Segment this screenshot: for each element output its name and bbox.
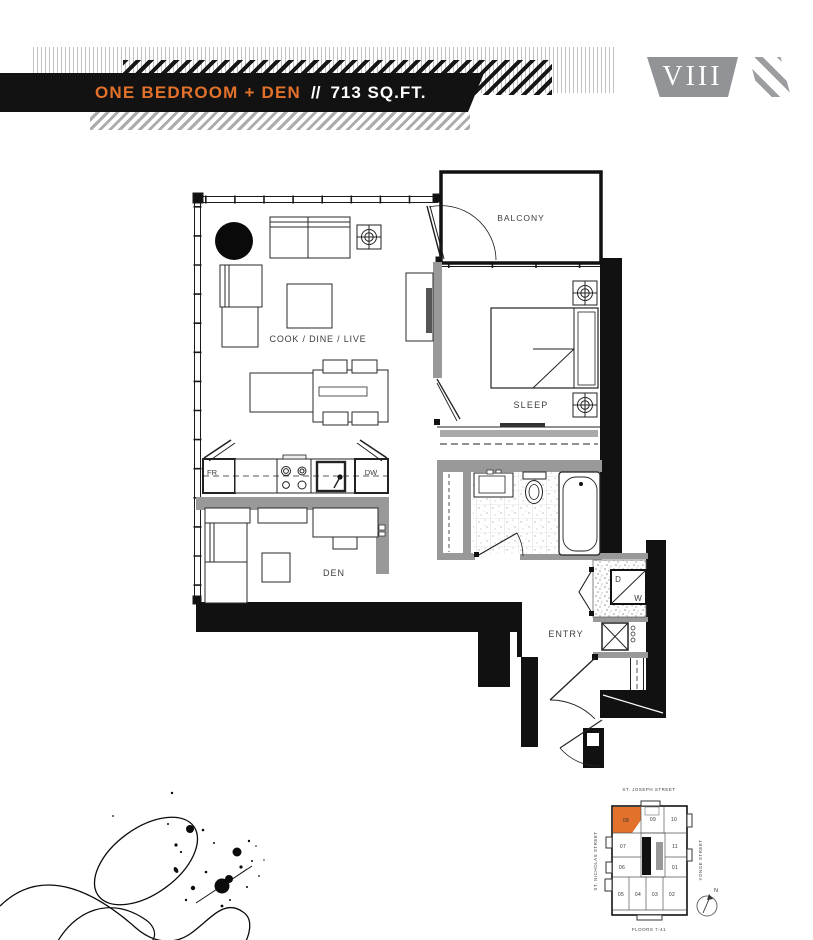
desk-chair	[333, 537, 357, 549]
round-table	[215, 222, 253, 260]
utility-box	[602, 623, 635, 650]
living-label: COOK / DINE / LIVE	[270, 334, 367, 344]
dining-table	[250, 373, 313, 412]
entry-door	[550, 654, 598, 719]
armchair	[220, 265, 262, 307]
dining-chair	[352, 412, 378, 425]
north-arrow-icon: N	[697, 888, 718, 916]
entry-label: ENTRY	[548, 629, 583, 639]
den-label: DEN	[323, 568, 345, 578]
sofa	[270, 217, 350, 258]
site-key-plan: 08 09 10 07 11 06 01 05 04 03 02 ST. JOS…	[593, 787, 718, 932]
sleep-label: SLEEP	[513, 400, 548, 410]
unit-cell: 05	[618, 892, 624, 898]
kitchen	[203, 440, 388, 493]
bathtub	[559, 472, 600, 555]
side-table	[287, 284, 332, 328]
unit-cell: 04	[635, 892, 641, 898]
brochure-page: ONE BEDROOM + DEN // 713 SQ.FT. VIII	[0, 0, 813, 940]
den-furniture	[205, 508, 385, 603]
light-fixture-icon	[573, 281, 597, 305]
living-furniture	[215, 217, 433, 425]
tv-screen	[426, 288, 432, 333]
fridge-label: FR	[207, 468, 218, 477]
unit-cell: 08	[623, 818, 629, 824]
floor-plan: BALCONY COOK / DINE / LIVE SLEEP DEN ENT…	[193, 172, 666, 768]
unit-cell: 06	[619, 865, 625, 871]
balcony-label: BALCONY	[497, 213, 545, 223]
bathroom	[449, 470, 600, 557]
bifold-door	[579, 567, 594, 616]
ink-splatter-graphic	[0, 792, 265, 940]
dining-chair	[323, 412, 348, 425]
unit-cell: 11	[672, 844, 678, 850]
light-fixture-icon	[357, 225, 381, 249]
light-fixture-icon	[573, 393, 597, 417]
unit-cell: 01	[672, 865, 678, 871]
dining-chair	[323, 360, 347, 373]
bed	[491, 308, 598, 388]
unit-cell: 02	[669, 892, 675, 898]
unit-cell: 10	[671, 817, 677, 823]
dishwasher-label: DW	[365, 468, 378, 477]
dryer-label: D	[615, 575, 621, 584]
washer-label: W	[634, 594, 642, 603]
bedroom	[434, 308, 600, 444]
street-label-top: ST. JOSEPH STREET	[622, 787, 675, 792]
floors-note: FLOORS 7-41	[632, 927, 666, 932]
desk	[313, 508, 378, 537]
unit-cell: 07	[620, 844, 626, 850]
dining-chair	[352, 360, 377, 373]
north-label: N	[714, 888, 718, 894]
ottoman	[262, 553, 290, 582]
unit-cell: 03	[652, 892, 658, 898]
bedroom-door	[434, 379, 460, 425]
street-label-right: YONGE STREET	[698, 839, 703, 880]
floor-plan-drawing: BALCONY COOK / DINE / LIVE SLEEP DEN ENT…	[0, 0, 813, 940]
street-label-left: ST. NICHOLAS STREET	[593, 831, 598, 890]
unit-cell: 09	[650, 817, 656, 823]
